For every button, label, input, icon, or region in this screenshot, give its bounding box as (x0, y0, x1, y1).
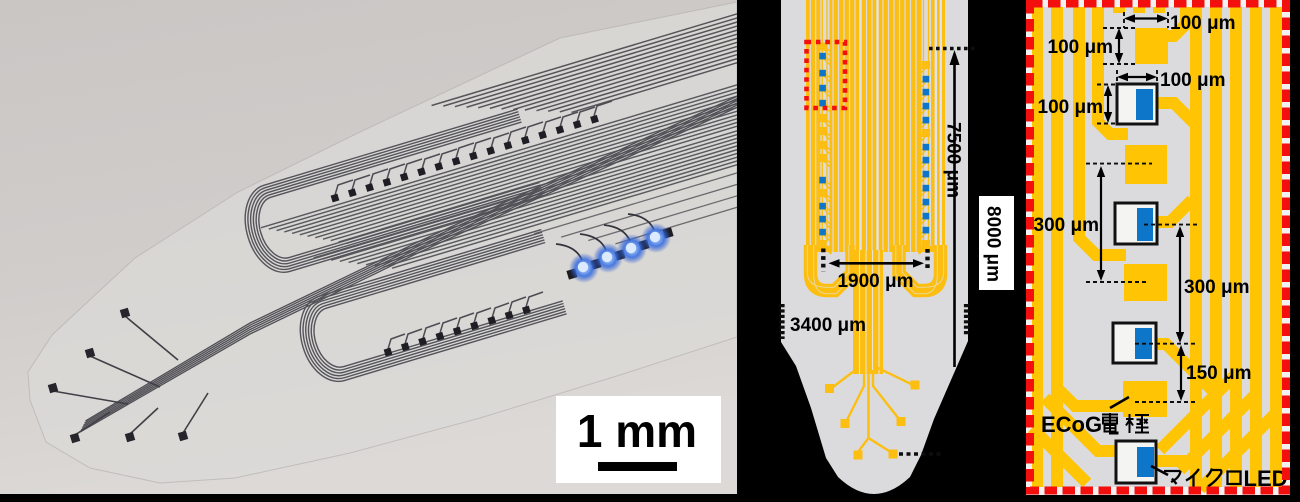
svg-text:1900 μm: 1900 μm (837, 271, 913, 292)
svg-text:100 μm: 100 μm (1170, 13, 1236, 34)
svg-text:150 μm: 150 μm (1186, 363, 1252, 384)
svg-text:300 μm: 300 μm (1034, 215, 1100, 236)
svg-text:100 μm: 100 μm (1160, 70, 1226, 91)
svg-text:8000 μm: 8000 μm (983, 206, 1004, 282)
svg-text:300 μm: 300 μm (1184, 277, 1250, 298)
svg-text:100 μm: 100 μm (1038, 97, 1104, 118)
svg-text:100 μm: 100 μm (1048, 37, 1114, 58)
svg-text:ECoG: ECoG (1041, 412, 1102, 437)
svg-text:3400 μm: 3400 μm (790, 315, 866, 336)
svg-text:7500 μm: 7500 μm (943, 122, 964, 198)
svg-text:1 mm: 1 mm (577, 405, 697, 457)
